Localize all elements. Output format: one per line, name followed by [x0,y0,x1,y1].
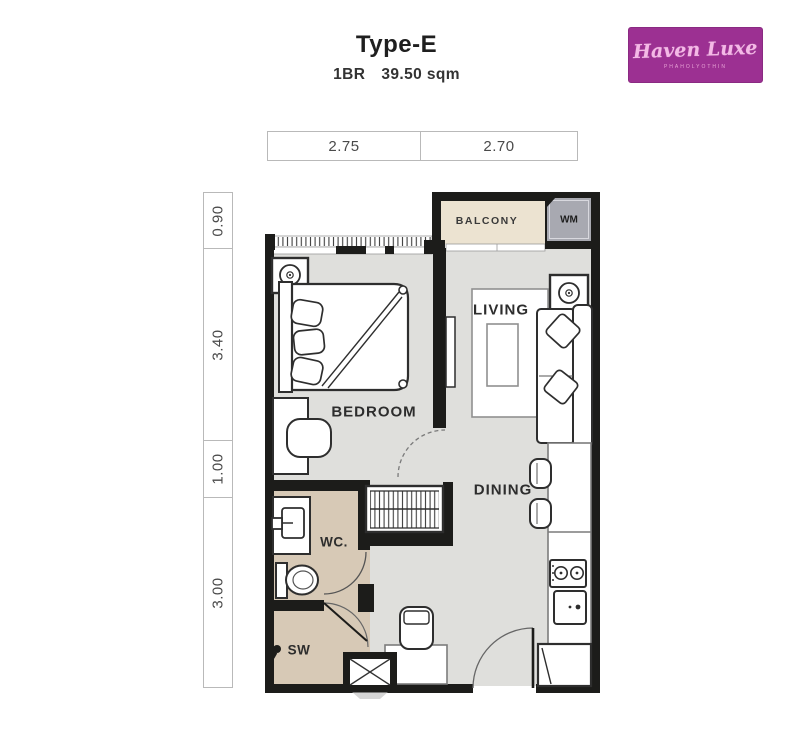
shaft [343,652,397,699]
stove-icon [550,560,586,587]
dining-label: DINING [474,482,533,499]
wardrobe [366,486,443,532]
bed [279,282,408,392]
bedroom-label: BEDROOM [331,404,416,421]
bathroom-sink-icon [272,497,310,554]
floorplan-page: Type-E 1BR39.50 sqm Haven Luxe PHAHOLYOT… [0,0,793,750]
fridge [538,644,591,686]
wc-label: WC. [320,535,348,550]
balcony-sliding-door [446,244,545,251]
tv [446,317,455,387]
washing-machine-label: WM [560,215,578,226]
living-label: LIVING [473,302,529,319]
pillows [290,299,325,386]
chair [400,607,433,649]
toilet-icon [276,563,318,598]
kitchen-sink-icon [554,591,586,624]
shower-label: SW [288,643,311,658]
floorplan-drawing [0,0,793,750]
sofa [537,305,592,447]
balcony-label: BALCONY [456,215,518,227]
